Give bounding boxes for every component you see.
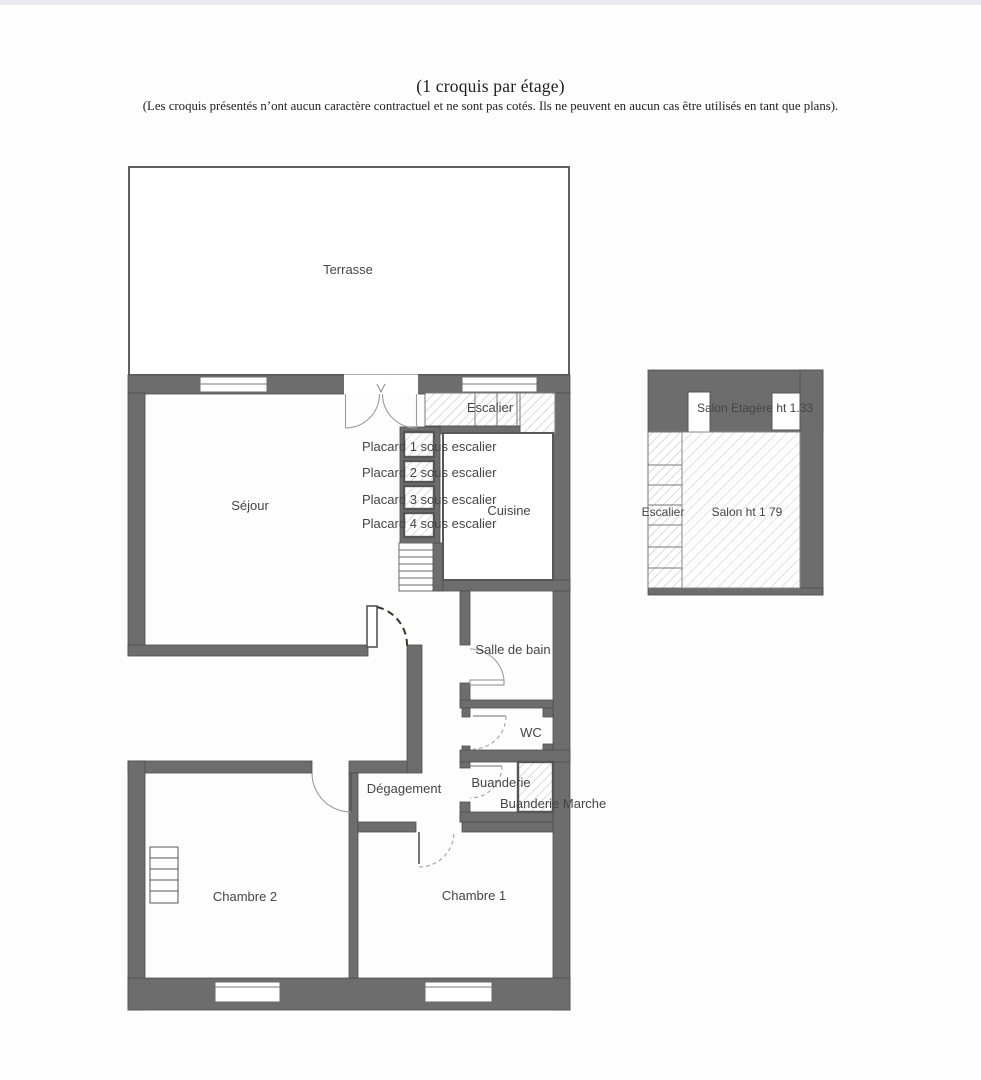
wall-cuisine-bottom [437, 580, 570, 591]
sejour-door-leaf [367, 606, 377, 647]
annex-etagere-label: Salon Etagère ht 1.33 [697, 401, 813, 415]
wall-sdb-left-upper [460, 591, 470, 645]
wall-sejour-bottom [128, 645, 368, 656]
wall-stairs-right [433, 543, 443, 591]
wall-chambre1-top-left [358, 822, 416, 832]
placard4-label: Placard 4 sous escalier [362, 516, 497, 531]
wall-bottom [128, 978, 570, 1010]
chambre1-door-arc [419, 832, 454, 867]
sejour-label: Séjour [231, 498, 269, 513]
degagement-label: Dégagement [367, 781, 442, 796]
wall-lower-top-right [349, 761, 407, 773]
wall-left-upper [128, 393, 145, 655]
chambre2-door-arc [312, 773, 351, 812]
wall-wc-left-stub-top [462, 708, 470, 717]
window-bottom-right [425, 982, 492, 1002]
terrasse-label: Terrasse [323, 262, 373, 277]
annex-escalier-label: Escalier [642, 505, 685, 519]
escalier-label: Escalier [467, 400, 514, 415]
sdb-door-leaf [470, 680, 504, 685]
wall-right [553, 393, 570, 1010]
window-bottom-left [215, 982, 280, 1002]
floorplan-page: (1 croquis par étage) (Les croquis prése… [0, 0, 981, 1080]
escalier-landing [520, 393, 555, 433]
wall-lower-top-left [128, 761, 312, 773]
wall-left-lower [128, 761, 145, 1010]
cuisine-label: Cuisine [487, 503, 530, 518]
annex-salon-label: Salon ht 1 79 [712, 505, 783, 519]
wall-sdb-bottom [460, 700, 553, 708]
sdb-label: Salle de bain [475, 642, 550, 657]
wall-buanderie-top [460, 750, 570, 762]
chambre2-label: Chambre 2 [213, 889, 277, 904]
annex-bottom-wall [648, 588, 823, 595]
sejour-door-arc [377, 607, 407, 646]
wall-buanderie-left-stub [460, 762, 470, 768]
placard1-label: Placard 1 sous escalier [362, 439, 497, 454]
wall-chambre1-top-right [462, 822, 553, 832]
wc-label: WC [520, 725, 542, 740]
wall-corridor-vertical [407, 645, 422, 773]
placard2-label: Placard 2 sous escalier [362, 465, 497, 480]
radiator [150, 847, 178, 903]
buanderie-label: Buanderie [471, 775, 530, 790]
wall-buanderie-bottom [460, 812, 553, 822]
floorplan-drawing: Terrasse Séjour Escalier Placard 1 sous … [0, 0, 981, 1080]
wc-door-arc [473, 716, 506, 749]
placard3-label: Placard 3 sous escalier [362, 492, 497, 507]
buanderie-marche-label: Buanderie Marche [500, 796, 606, 811]
chambre1-label: Chambre 1 [442, 888, 506, 903]
wall-wc-right-stub-top [543, 708, 553, 717]
